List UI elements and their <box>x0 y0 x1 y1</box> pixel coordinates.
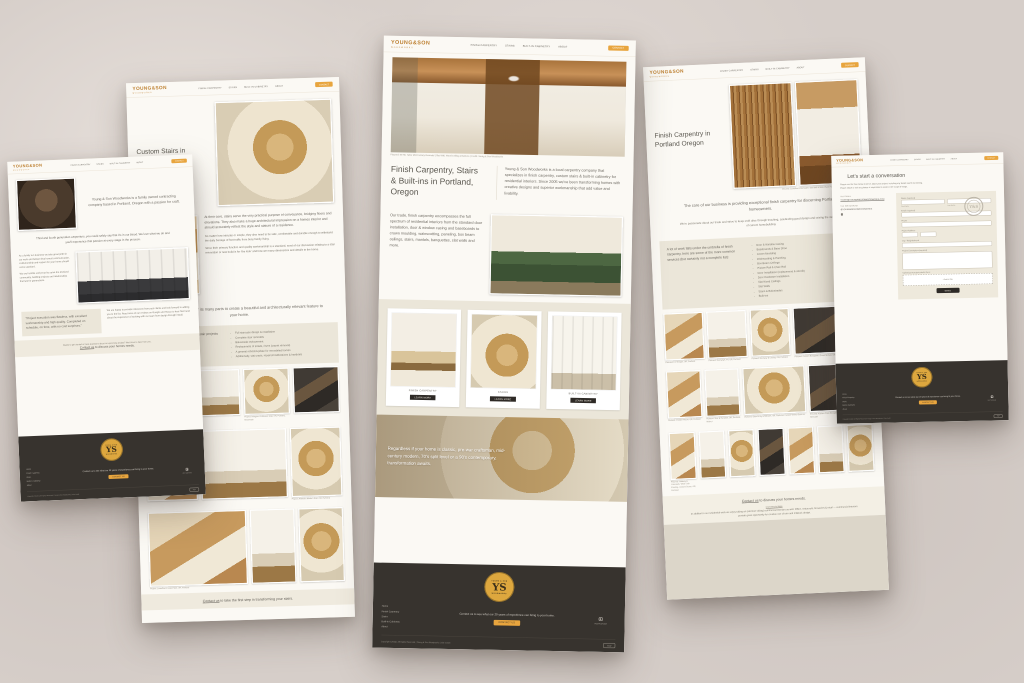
gallery-photo <box>148 510 248 587</box>
gallery-photo <box>666 370 702 419</box>
intro-paragraph: Young & Son Woodworks is a local carpent… <box>496 166 624 202</box>
gallery-caption <box>252 583 297 584</box>
first-name-sublabel: First Name <box>901 204 945 207</box>
footer-link[interactable]: Home <box>382 605 429 608</box>
cta-rest: to take the first step in transforming y… <box>220 597 293 603</box>
site-footer: YOUNG & SON YS WOODWORKS HomeFinish Carp… <box>372 562 626 652</box>
gallery-photo <box>663 312 704 361</box>
gallery-caption: Pictured: Fir Stringer, OR, Portland <box>665 360 704 365</box>
gallery-caption: Pictured: Hallway & Casework, White Oak … <box>671 480 697 492</box>
nav-item[interactable]: BUILT-IN CABINETRY <box>110 162 131 165</box>
back-to-top-button[interactable]: TOP <box>994 414 1003 418</box>
nav-item[interactable]: ABOUT <box>275 84 283 87</box>
copyright: Copyright ©2024 | All Rights Reserved | … <box>381 640 450 644</box>
footer-links: HomeFinish CarpentryStairsBuilt-in Cabin… <box>381 605 428 629</box>
footer-tagline: Contact us to see what our 20 years of e… <box>450 612 563 619</box>
nav-item[interactable]: ABOUT <box>136 161 143 163</box>
footer-link[interactable]: Stairs <box>382 616 429 619</box>
gallery-thumb[interactable]: Pictured: Stair & Handrail, OR, Portland… <box>704 369 741 424</box>
gallery-photo <box>290 427 343 497</box>
nav-item[interactable]: STAIRS <box>750 68 759 71</box>
footer-link[interactable]: Stairs <box>842 400 874 403</box>
gallery-photo <box>847 424 875 472</box>
core-statement: The core of our business is providing ex… <box>683 196 839 216</box>
copyright: Copyright ©2024 | All Rights Reserved | … <box>843 417 891 419</box>
gallery-thumb[interactable]: Project: Laurelhurst Grand Stair, OR, Po… <box>148 510 248 591</box>
mockup-stage: YOUNG&SON WOODWORKS FINISH CARPENTRYSTAI… <box>0 0 1024 683</box>
cta-band: Contact us to take the first step in tra… <box>141 588 354 610</box>
service-card[interactable]: BUILT-IN CABINETRY LEARN MORE <box>546 311 622 410</box>
footer-contact-button[interactable]: CONTACT US <box>919 400 937 404</box>
footer-link[interactable]: Finish Carpentry <box>26 471 60 474</box>
gallery-caption: Pictured: Stair & Handrail, OR, Portland… <box>706 416 741 423</box>
page-about: YOUNG&SON WOODWORKS FINISH CARPENTRYSTAI… <box>7 154 205 501</box>
gallery-caption <box>849 472 875 473</box>
footer-link[interactable]: About <box>27 483 61 486</box>
instagram-icon <box>186 468 189 471</box>
footer-link[interactable]: Built-in Cabinetry <box>27 479 61 482</box>
hero-photo <box>390 57 626 156</box>
stairs-body-small: Since their primary function and quality… <box>205 243 336 256</box>
add-file-label: + Add a File <box>943 278 953 280</box>
nav-item[interactable]: ABOUT <box>558 46 567 49</box>
gallery-photo <box>698 430 726 478</box>
gallery-caption: Pictured: Doorways, Fir, OR, Portland <box>709 358 748 363</box>
gallery-photo <box>200 428 288 500</box>
footer-link[interactable]: Built-in Cabinetry <box>381 621 428 624</box>
gallery-photo <box>758 428 786 476</box>
gallery-thumb[interactable]: Project: Alameda Modern Stair, OR, Portl… <box>290 427 343 501</box>
contact-button[interactable]: CONTACT <box>172 159 188 164</box>
contact-button[interactable]: CONTACT <box>841 62 859 68</box>
phone-input[interactable] <box>902 221 992 228</box>
stair-hero-photo <box>215 99 335 206</box>
contact-button[interactable]: CONTACT <box>984 156 998 160</box>
values-section: As a family run business we take great p… <box>11 243 198 310</box>
gallery-photo <box>817 425 845 473</box>
gallery-thumb[interactable] <box>847 424 875 484</box>
nav-item[interactable]: FINISH CARPENTRY <box>199 86 222 89</box>
gallery-photo <box>293 366 340 413</box>
logo-subtitle: WOODWORKS <box>13 168 43 171</box>
gallery-caption: Pictured: Powder Room, OR, Portland <box>668 418 702 422</box>
instagram-icon <box>599 617 603 621</box>
nav-item[interactable]: BUILT-IN CABINETRY <box>926 158 945 160</box>
gallery-thumb[interactable] <box>250 508 297 587</box>
cta-rest: to discuss your homes needs. <box>95 345 135 350</box>
gallery-thumb[interactable] <box>758 428 786 488</box>
file-upload-dropzone[interactable]: + Add a File <box>903 273 993 286</box>
reviews-text: We are happy to provide references from … <box>107 305 192 333</box>
site-footer: YOUNG & SON YS WOODWORKS HomeFinish Carp… <box>18 429 205 501</box>
address-input-2[interactable] <box>920 232 936 237</box>
nav-item[interactable]: FINISH CARPENTRY <box>471 44 497 47</box>
main-nav: FINISH CARPENTRYSTAIRSBUILT-IN CABINETRY… <box>890 158 957 161</box>
cta-photo-band: Regardless if your home is classic, pre-… <box>375 414 629 501</box>
service-label: FINISH CARPENTRY <box>390 389 456 393</box>
gallery-photo <box>706 310 747 359</box>
nav-item[interactable]: STAIRS <box>229 86 238 89</box>
main-nav: FINISH CARPENTRYSTAIRSBUILT-IN CABINETRY… <box>471 44 568 48</box>
copyright: Copyright ©2024 | All Rights Reserved | … <box>27 493 79 497</box>
logo[interactable]: YOUNG&SON WOODWORKS <box>649 69 684 78</box>
learn-more-button[interactable]: LEARN MORE <box>410 395 436 401</box>
learn-more-button[interactable]: LEARN MORE <box>570 398 596 404</box>
nav-item[interactable]: STAIRS <box>505 45 515 48</box>
email-link[interactable]: YOUNG@YOUNGANDSONWOODWORKS.COM <box>840 198 891 202</box>
contact-button[interactable]: CONTACT <box>315 82 333 87</box>
footer-link[interactable]: Built-in Cabinetry <box>842 404 874 407</box>
nav-item[interactable]: BUILT-IN CABINETRY <box>244 85 268 88</box>
service-card[interactable]: FINISH CARPENTRY LEARN MORE <box>386 308 462 407</box>
back-to-top-button[interactable]: TOP <box>603 643 615 648</box>
nav-item[interactable]: ABOUT <box>951 158 957 160</box>
cta-line: Contact us to take the first step in tra… <box>150 595 346 604</box>
logo-subtitle: WOODWORKS <box>836 162 863 164</box>
contact-link[interactable]: Contact us <box>203 599 220 603</box>
footer-link[interactable]: Finish Carpentry <box>842 396 874 399</box>
page-home: YOUNG&SON WOODWORKS FINISH CARPENTRYSTAI… <box>372 36 636 653</box>
gallery-photo <box>742 366 806 416</box>
page-contact: YOUNG&SON WOODWORKS FINISH CARPENTRYSTAI… <box>831 152 1009 424</box>
page-title: Finish Carpentry, Stairs & Built-ins in … <box>390 164 488 200</box>
learn-more-button[interactable]: LEARN MORE <box>490 396 516 402</box>
gallery-thumb[interactable] <box>293 366 340 420</box>
contact-button[interactable]: CONTACT <box>608 45 629 51</box>
footer-link[interactable]: Finish Carpentry <box>382 611 429 614</box>
service-label: BUILT-IN CABINETRY <box>550 392 616 396</box>
footer-contact-button[interactable]: CONTACT US <box>109 474 129 479</box>
gallery-photo <box>787 426 815 474</box>
gallery-caption <box>730 477 756 478</box>
gallery-thumb[interactable] <box>817 425 845 485</box>
page-tail <box>664 515 889 600</box>
gallery-photo <box>749 308 790 357</box>
instagram-icon <box>991 396 994 399</box>
footer-social[interactable]: INSTAGRAM <box>176 468 199 475</box>
footer-tagline: Contact us to see what our 20 years of e… <box>889 394 966 399</box>
gallery-caption <box>300 582 345 583</box>
nav-item[interactable]: BUILT-IN CABINETRY <box>766 66 790 70</box>
logo[interactable]: YOUNG&SON WOODWORKS <box>836 158 863 165</box>
site-footer: YOUNG & SON YS WOODWORKS HomeFinish Carp… <box>836 360 1009 424</box>
logo[interactable]: YOUNG&SON WOODWORKS <box>13 163 43 171</box>
about-intro-text: Young & Son Woodworks is a family owned … <box>82 193 187 208</box>
gallery-caption: Project: Irvington Craftsman Stair, OR, … <box>244 415 290 422</box>
living-room-photo <box>490 214 623 297</box>
cta-rest: to discuss your homes needs. <box>759 497 805 503</box>
brand-badge: YOUNG & SON YS WOODWORKS <box>911 367 932 388</box>
main-nav: FINISH CARPENTRYSTAIRSBUILT-IN CABINETRY… <box>720 66 805 72</box>
stair-projects-list: Full staircase design & installationComp… <box>230 328 332 359</box>
footer-link[interactable]: About <box>843 407 875 410</box>
project-description-textarea[interactable] <box>902 251 992 270</box>
logo-subtitle: WOODWORKS <box>391 46 430 49</box>
gallery-thumb[interactable] <box>698 430 726 490</box>
services-intro: A lot of work falls under the umbrella o… <box>667 244 746 303</box>
main-nav: FINISH CARPENTRYSTAIRSBUILT-IN CABINETRY… <box>71 161 144 166</box>
footer-tagline: Contact us to see what our 20 years of e… <box>77 467 160 474</box>
family-photo <box>16 178 77 231</box>
about-intro-section: Young & Son Woodworks is a family owned … <box>8 167 195 234</box>
logo[interactable]: YOUNG&SON WOODWORKS <box>132 85 167 94</box>
gallery-photo <box>243 368 290 415</box>
nav-item[interactable]: STAIRS <box>914 159 921 161</box>
back-to-top-button[interactable]: TOP <box>189 487 199 491</box>
footer-links: HomeFinish CarpentryStairsBuilt-in Cabin… <box>842 392 874 410</box>
gallery-photo <box>704 369 740 418</box>
logo[interactable]: YOUNG&SON WOODWORKS <box>391 39 430 49</box>
heading-section: Finish Carpentry, Stairs & Built-ins in … <box>381 156 634 209</box>
trade-paragraph: Our trade, finish carpentry encompasses … <box>389 212 484 294</box>
nav-item[interactable]: FINISH CARPENTRY <box>71 164 91 167</box>
gallery-thumb[interactable] <box>200 428 288 503</box>
gallery-thumb[interactable]: Pictured: Slate Entry & Millwork, OR, Po… <box>742 366 806 422</box>
footer-link[interactable]: About <box>381 626 428 629</box>
testimonial-quote: “Project execution was flawless, with ex… <box>21 309 102 337</box>
values-paragraph: We are humble and proud to serve the Por… <box>19 270 70 283</box>
finish-gallery-row3: Pictured: Hallway & Casework, White Oak … <box>660 423 884 492</box>
nav-item[interactable]: BUILT-IN CABINETRY <box>523 45 551 48</box>
send-button[interactable]: SEND <box>936 288 959 293</box>
slat-wall-photo <box>729 82 796 189</box>
gallery-photo <box>728 429 756 477</box>
service-photo <box>470 314 537 389</box>
gallery-thumb[interactable]: Pictured: Powder Room, OR, Portland <box>666 370 703 425</box>
band-text: Regardless if your home is classic, pre-… <box>376 445 512 470</box>
gallery-caption <box>789 474 815 475</box>
passion-statement: We're passionate about our trade and str… <box>679 215 844 232</box>
service-card[interactable]: STAIRS LEARN MORE <box>466 310 542 409</box>
service-label: STAIRS <box>470 391 536 395</box>
service-photo <box>390 312 457 387</box>
gallery-caption <box>760 476 786 477</box>
brand-badge: YOUNG & SON YS WOODWORKS <box>100 438 123 461</box>
footer-links: HomeFinish CarpentryStairsBuilt-in Cabin… <box>26 467 61 486</box>
values-paragraph: As a family run business we take great p… <box>19 252 70 269</box>
nav-item[interactable]: ABOUT <box>797 66 805 69</box>
gallery-thumb[interactable]: Pictured: Doorways, Fir, OR, Portland <box>706 310 748 362</box>
quality-seal <box>964 197 983 216</box>
brand-badge: YOUNG & SON YS WOODWORKS <box>484 572 515 603</box>
gallery-thumb[interactable] <box>787 426 815 486</box>
gallery-thumb[interactable] <box>728 429 756 489</box>
nav-item[interactable]: STAIRS <box>96 163 103 165</box>
gallery-thumb[interactable]: Project: Irvington Craftsman Stair, OR, … <box>243 368 290 422</box>
gallery-photo <box>669 432 697 480</box>
stairs-gallery-row3: Project: Laurelhurst Grand Stair, OR, Po… <box>139 507 354 591</box>
stairs-body-small: No matter how intricate or simple, they … <box>205 231 336 244</box>
gallery-caption <box>701 478 727 479</box>
contact-link[interactable]: Contact us <box>80 346 94 350</box>
service-photo <box>550 315 617 390</box>
hero-section: Pictured: SE Mt. Tabor Mid-Century Remod… <box>382 52 636 161</box>
service-cards: FINISH CARPENTRY LEARN MORE STAIRS LEARN… <box>377 299 631 419</box>
footer-social[interactable]: INSTAGRAM <box>585 617 616 625</box>
logo-subtitle: WOODWORKS <box>133 91 167 94</box>
nav-item[interactable]: FINISH CARPENTRY <box>890 159 908 161</box>
gallery-thumb[interactable] <box>298 507 345 586</box>
gallery-photo <box>250 508 297 583</box>
builtin-library-photo <box>76 247 191 303</box>
gallery-thumb[interactable]: Pictured: Fir Stringer, OR, Portland <box>663 312 705 364</box>
instagram-handle-link[interactable]: @YOUNGANDSONWOODWORKS <box>841 207 892 211</box>
gallery-caption: Project: Alameda Modern Stair, OR, Portl… <box>292 496 343 500</box>
city-input[interactable] <box>902 241 992 248</box>
gallery-thumb[interactable]: Pictured: Hallway & Casework, White Oak … <box>669 432 697 492</box>
badge-monogram: YS <box>492 582 507 593</box>
footer-link[interactable]: Stairs <box>26 475 60 478</box>
address-input-1[interactable] <box>902 232 918 237</box>
footer-link[interactable]: Home <box>842 392 874 395</box>
footer-contact-button[interactable]: CONTACT US <box>494 620 520 626</box>
footer-social[interactable]: INSTAGRAM <box>981 395 1002 401</box>
main-nav: FINISH CARPENTRYSTAIRSBUILT-IN CABINETRY… <box>199 84 284 89</box>
page-title: Finish Carpentry in Portland Oregon <box>654 128 725 149</box>
trade-section: Our trade, finish carpentry encompasses … <box>379 205 633 304</box>
gallery-thumb[interactable]: Pictured: Doorway & Casing, OR, Portland <box>749 308 791 360</box>
nav-item[interactable]: FINISH CARPENTRY <box>720 69 743 73</box>
stairs-body-text: At their core, stairs serve the very pra… <box>204 211 335 231</box>
gallery-caption: Pictured: Doorway & Casing, OR, Portland <box>752 356 791 361</box>
gallery-caption <box>819 473 845 474</box>
contact-info-column: VIA EMAIL YOUNG@YOUNGANDSONWOODWORKS.COM… <box>840 193 894 301</box>
contact-link[interactable]: Contact us <box>742 499 759 503</box>
logo-subtitle: WOODWORKS <box>650 74 684 78</box>
instagram-icon[interactable] <box>841 213 844 216</box>
gallery-photo <box>298 507 345 582</box>
footer-link[interactable]: Home <box>26 467 60 470</box>
